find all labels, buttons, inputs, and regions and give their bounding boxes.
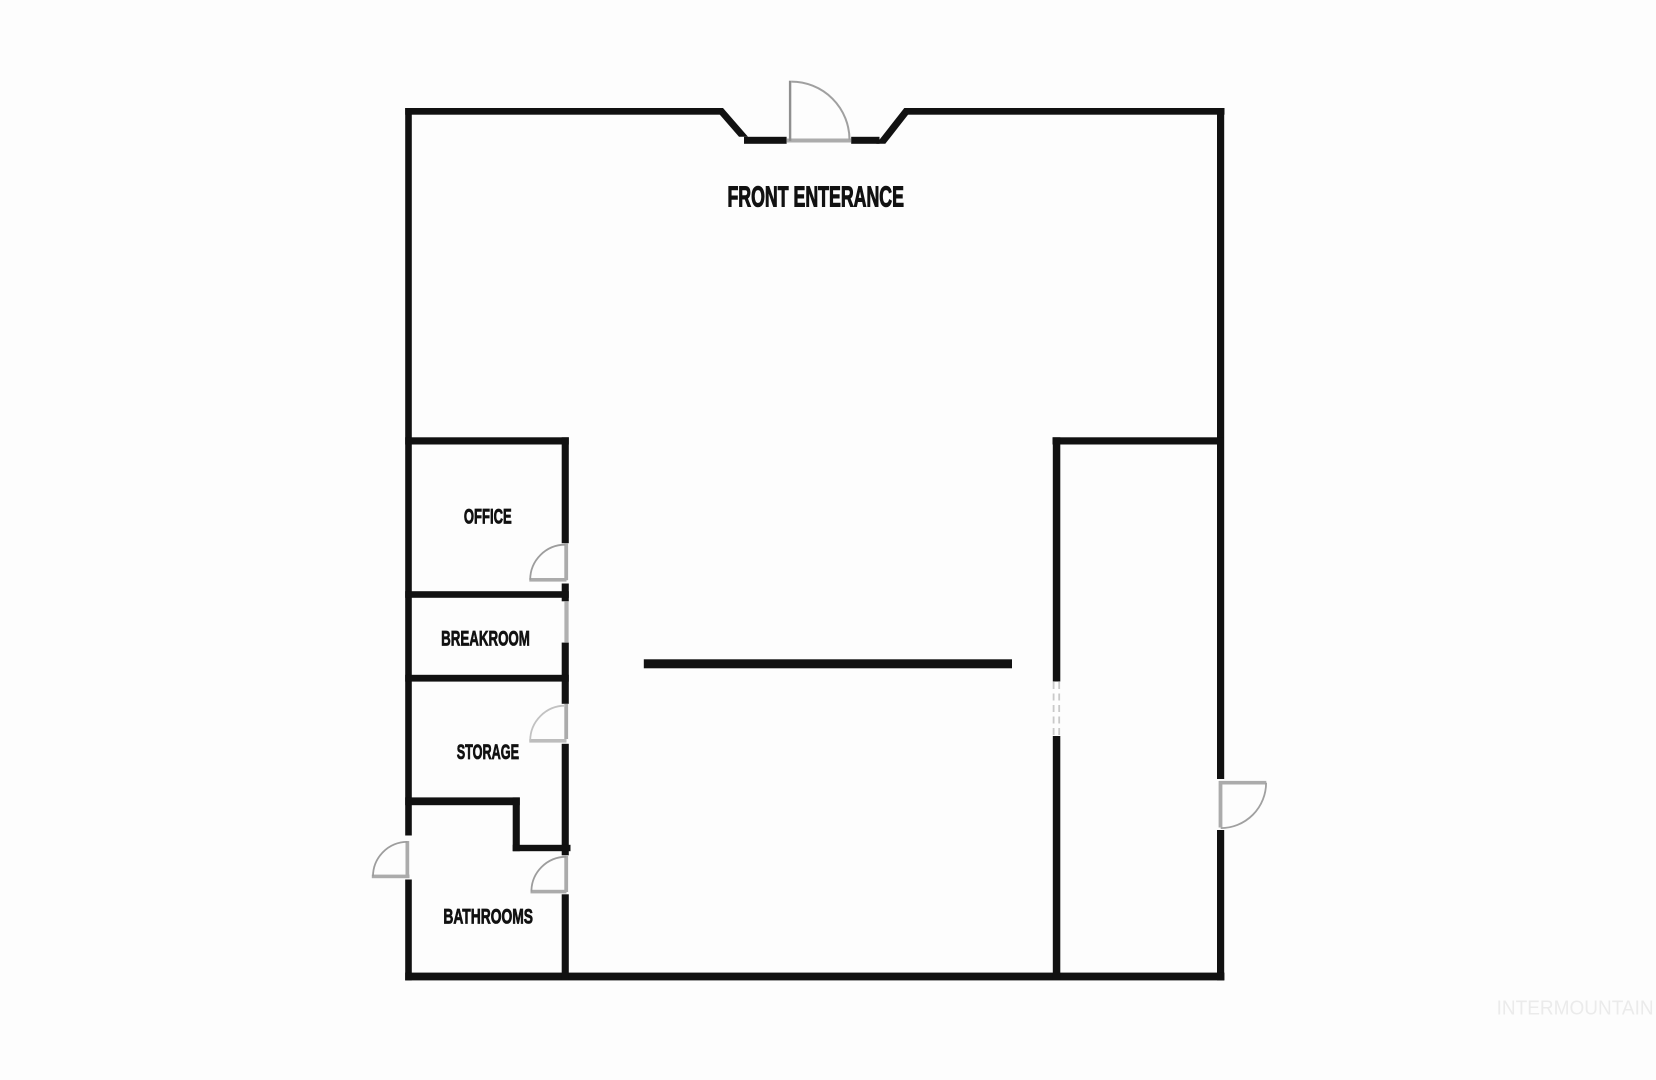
svg-text:STORAGE: STORAGE — [457, 740, 519, 764]
svg-text:FRONT ENTERANCE: FRONT ENTERANCE — [727, 182, 904, 214]
svg-text:INTERMOUNTAIN: INTERMOUNTAIN — [1497, 998, 1654, 1020]
svg-text:BATHROOMS: BATHROOMS — [443, 906, 533, 929]
svg-text:BREAKROOM: BREAKROOM — [441, 626, 530, 650]
svg-text:OFFICE: OFFICE — [464, 504, 512, 528]
